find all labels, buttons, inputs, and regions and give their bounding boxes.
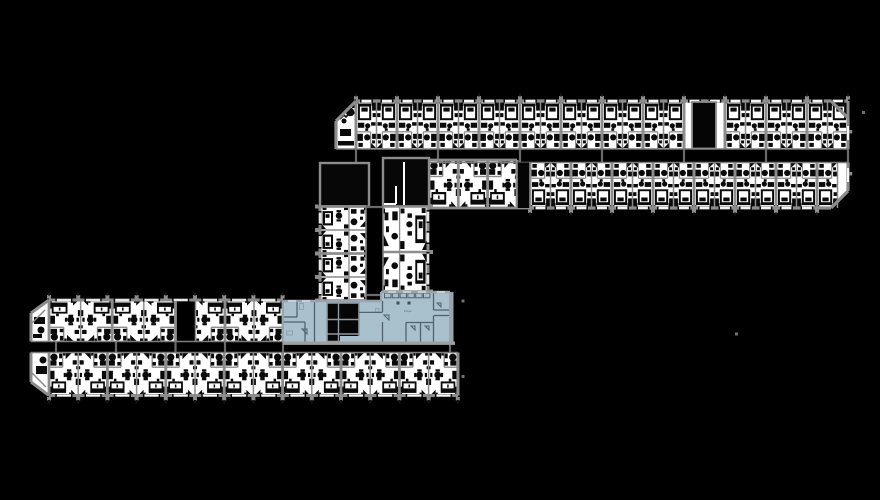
svg-text:Foyer: Foyer: [404, 309, 412, 313]
